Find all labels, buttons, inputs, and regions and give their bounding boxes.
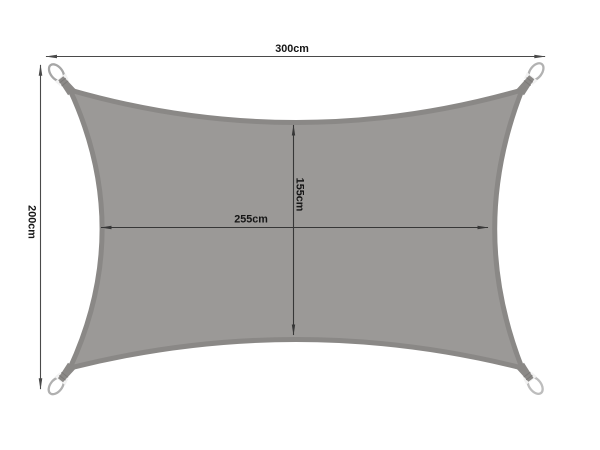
svg-text:255cm: 255cm [234, 214, 268, 226]
svg-text:200cm: 200cm [25, 205, 37, 239]
svg-text:155cm: 155cm [293, 178, 305, 212]
svg-text:300cm: 300cm [275, 43, 309, 55]
